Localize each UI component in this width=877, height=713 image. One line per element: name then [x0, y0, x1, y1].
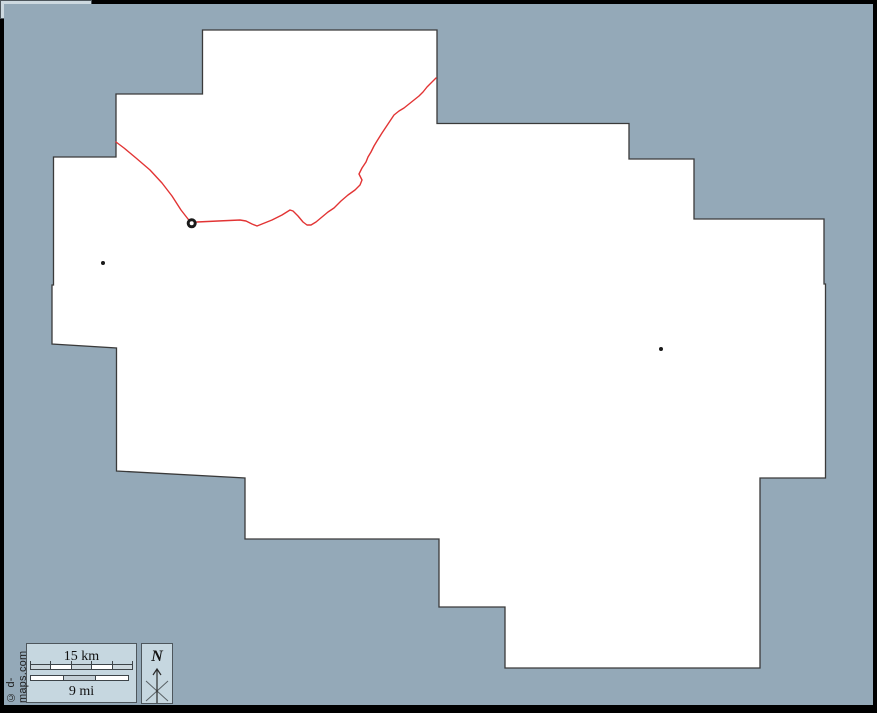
scale-mi-label: 9 mi: [27, 685, 136, 699]
city-dot: [659, 347, 663, 351]
city-ring-marker: [188, 220, 195, 227]
scale-segment: [96, 676, 128, 680]
scale-segment: [72, 665, 92, 669]
copyright-credit: © d-maps.com: [5, 631, 29, 703]
map-canvas: 15 km 9 mi N → Mercator © d-maps.com: [0, 0, 877, 713]
city-dot: [101, 261, 105, 265]
north-arrow-box: N: [141, 643, 173, 704]
scale-segment: [31, 676, 64, 680]
scale-segment: [113, 665, 132, 669]
scale-segment: [51, 665, 71, 669]
scale-km-bar: [30, 664, 133, 670]
region-outline: [52, 30, 826, 668]
scale-segment: [31, 665, 51, 669]
north-label: N: [142, 648, 172, 666]
scale-mi-bar: [30, 675, 129, 681]
compass-rose-icon: [142, 666, 172, 704]
scale-segment: [92, 665, 112, 669]
map-layer: [0, 0, 877, 713]
scale-segment: [64, 676, 97, 680]
scale-bar-box: 15 km 9 mi: [26, 643, 137, 703]
